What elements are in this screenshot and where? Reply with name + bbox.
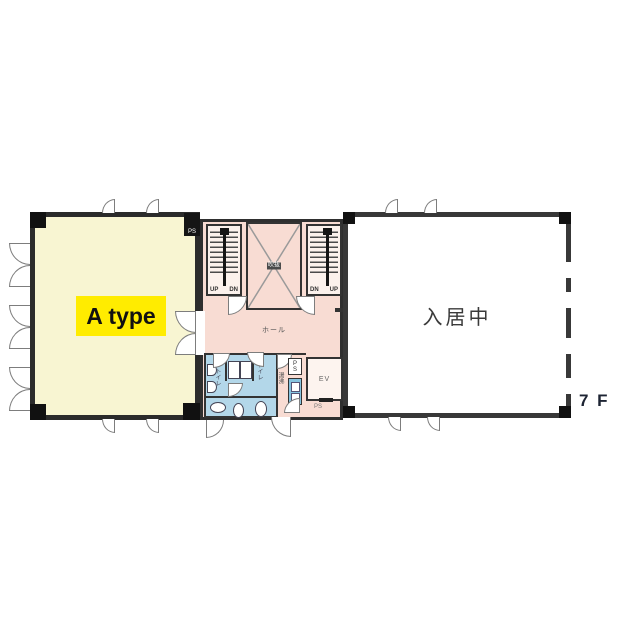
- room-occupied: 入居中: [343, 212, 571, 418]
- wall-column: [559, 212, 571, 224]
- window-swing-icon: [9, 327, 30, 349]
- toilet-left-label: トイレ: [214, 368, 220, 386]
- window-swing-icon: [427, 417, 440, 431]
- window-swing-icon: [9, 367, 30, 389]
- ps-mid-label: PS: [292, 361, 298, 373]
- toilet-icon: [210, 402, 226, 413]
- window-swing-icon: [9, 265, 30, 287]
- window-swing-icon: [102, 199, 115, 213]
- elevator: EV: [306, 357, 343, 401]
- room-a-type-label: A type: [76, 296, 166, 336]
- partition-wall: [206, 396, 276, 398]
- stairwell-left: UP DN: [206, 224, 242, 296]
- sink-basin-icon: [291, 382, 300, 392]
- window-notch: [566, 378, 571, 394]
- window-notch: [566, 292, 571, 308]
- elevator-label: EV: [319, 376, 330, 383]
- door-opening: [195, 311, 205, 355]
- occupied-label: 入居中: [423, 301, 492, 330]
- pipe-space-top: PS: [184, 213, 200, 236]
- floor-label: 7 F: [579, 391, 610, 411]
- toilet-icon: [255, 401, 267, 417]
- window-swing-icon: [424, 199, 437, 213]
- window-swing-icon: [9, 305, 30, 327]
- ps-top-label: PS: [188, 228, 196, 236]
- elevator-door-icon: [319, 398, 333, 402]
- wall-column: [30, 404, 46, 420]
- pipe-space-middle: PS: [288, 358, 302, 375]
- stair-dn-label: DN: [229, 287, 238, 293]
- wall-column: [30, 212, 46, 228]
- stairwell-right: DN UP: [306, 224, 342, 296]
- toilet-icon: [233, 403, 244, 418]
- window-swing-icon: [102, 419, 115, 433]
- wall-column: [343, 212, 355, 224]
- window-swing-icon: [9, 243, 30, 265]
- hall-label: ホール: [254, 325, 294, 335]
- stair-rail: [326, 231, 329, 286]
- window-notch: [566, 262, 571, 278]
- window-notch: [566, 338, 571, 354]
- stair-rail: [223, 231, 226, 286]
- window-swing-icon: [388, 417, 401, 431]
- stair-up-label: UP: [210, 287, 218, 293]
- window-swing-icon: [146, 199, 159, 213]
- window-swing-icon: [385, 199, 398, 213]
- stair-dn-label: DN: [310, 287, 319, 293]
- stair-up-label: UP: [330, 287, 338, 293]
- floor-plan-7f: A type PS UP DN 吹抜 DN UP ホール: [0, 0, 630, 630]
- wall-segment: [335, 308, 343, 312]
- stair-treads-icon: [310, 228, 338, 276]
- washstand-icon: [240, 361, 252, 379]
- pipe-space-bottom: PS: [314, 404, 322, 410]
- wall-column: [559, 406, 571, 418]
- void-shaft-label: 吹抜: [267, 263, 281, 270]
- door-swing-icon: [206, 420, 224, 438]
- kitchenette-label: 湯沸: [276, 372, 285, 384]
- door-swing-icon: [271, 417, 291, 437]
- window-swing-icon: [146, 419, 159, 433]
- a-type-text: A type: [86, 303, 155, 330]
- window-swing-icon: [9, 389, 30, 411]
- washstand-icon: [228, 361, 240, 379]
- void-shaft: 吹抜: [246, 222, 302, 310]
- wall-column: [343, 406, 355, 418]
